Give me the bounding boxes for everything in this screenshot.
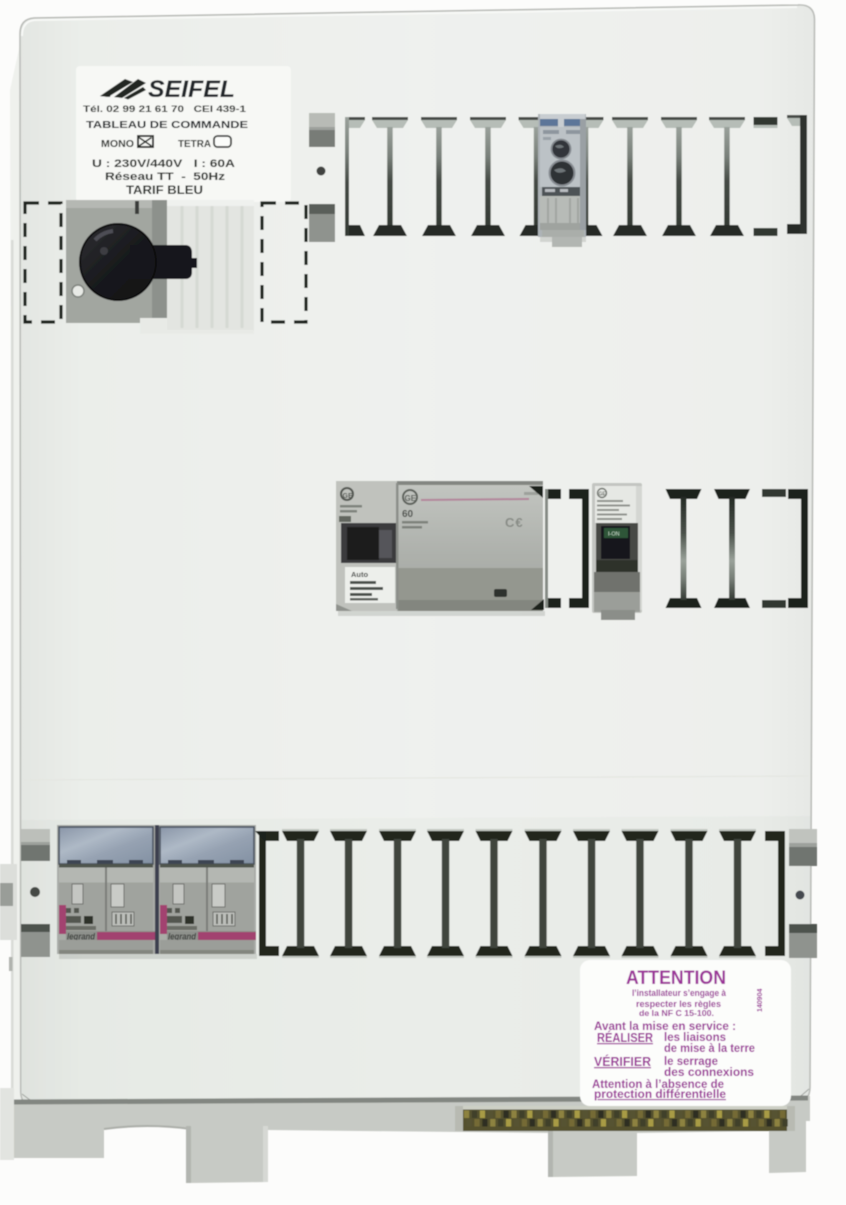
svg-text:TARIF BLEU: TARIF BLEU (126, 185, 203, 197)
svg-text:SEIFEL: SEIFEL (148, 76, 235, 103)
svg-text:protection différentielle: protection différentielle (594, 1089, 726, 1101)
svg-text:TETRA: TETRA (178, 138, 211, 150)
svg-text:RÉALISER: RÉALISER (597, 1030, 653, 1045)
svg-text:C€: C€ (505, 515, 524, 530)
svg-text:Réseau TT - 50Hz: Réseau TT - 50Hz (105, 171, 226, 183)
svg-text:de la NF C 15-100.: de la NF C 15-100. (639, 1008, 714, 1018)
svg-text:I-ON: I-ON (608, 532, 620, 538)
svg-text:U : 230V/440V I : 60A: U : 230V/440V I : 60A (92, 158, 235, 170)
svg-text:Auto: Auto (351, 570, 368, 579)
svg-text:VÉRIFIER: VÉRIFIER (594, 1054, 651, 1069)
svg-text:Tél. 02 99 21 61 70 CEI 439-: Tél. 02 99 21 61 70 CEI 439-1 (83, 104, 247, 115)
svg-text:ATTENTION: ATTENTION (626, 968, 726, 989)
svg-text:TABLEAU DE COMMANDE: TABLEAU DE COMMANDE (86, 119, 248, 131)
svg-text:l’installateur s’engage à: l’installateur s’engage à (632, 988, 727, 998)
svg-text:de mise à la terre: de mise à la terre (664, 1043, 755, 1055)
svg-text:MONO: MONO (101, 138, 134, 150)
svg-text:GE: GE (599, 492, 607, 498)
svg-text:des connexions: des connexions (664, 1067, 754, 1079)
svg-text:60: 60 (402, 509, 414, 520)
svg-text:140904: 140904 (757, 989, 764, 1012)
svg-text:GE: GE (343, 493, 353, 500)
svg-text:GE: GE (405, 494, 417, 503)
